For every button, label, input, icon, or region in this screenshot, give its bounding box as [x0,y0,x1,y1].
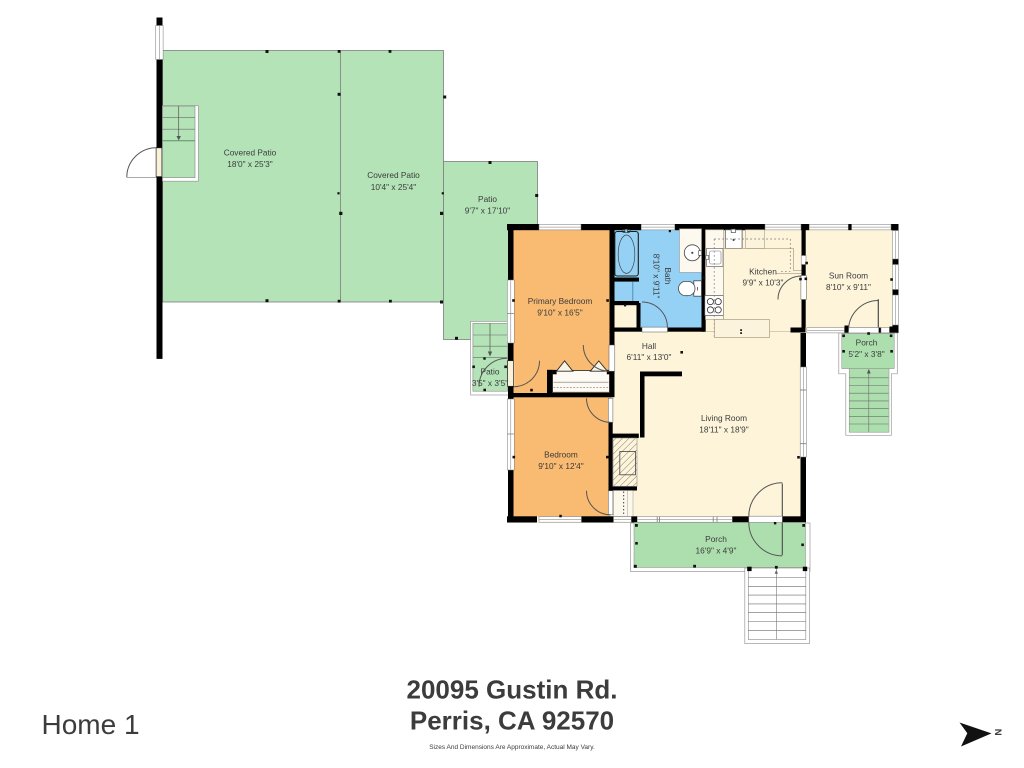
svg-text:Covered Patio: Covered Patio [367,170,420,180]
svg-text:16'9" x 4'9": 16'9" x 4'9" [696,546,737,556]
svg-text:9'10" x 12'4": 9'10" x 12'4" [538,461,584,471]
svg-text:Hall: Hall [642,341,656,351]
svg-text:Patio: Patio [478,194,497,204]
svg-text:6'11" x 13'0": 6'11" x 13'0" [627,352,672,362]
svg-text:Porch: Porch [856,338,878,348]
svg-text:N: N [992,729,1003,736]
svg-text:Porch: Porch [705,534,727,544]
svg-text:Sizes And Dimensions Are Appro: Sizes And Dimensions Are Approximate, Ac… [429,744,595,751]
svg-text:9'7" x 17'10": 9'7" x 17'10" [465,206,511,216]
svg-text:Home 1: Home 1 [42,709,140,740]
svg-text:5'2" x 3'8": 5'2" x 3'8" [848,349,884,359]
svg-text:9'10" x 16'5": 9'10" x 16'5" [537,308,583,318]
svg-text:Living Room: Living Room [701,413,747,423]
svg-text:18'0" x 25'3": 18'0" x 25'3" [227,159,273,169]
svg-text:Sun Room: Sun Room [829,271,868,281]
svg-text:Covered Patio: Covered Patio [224,148,277,158]
svg-text:18'11" x 18'9": 18'11" x 18'9" [699,425,749,435]
svg-text:Primary Bedroom: Primary Bedroom [528,296,593,306]
svg-text:Patio: Patio [481,367,500,377]
svg-text:Bedroom: Bedroom [544,450,578,460]
svg-text:Kitchen: Kitchen [749,267,777,277]
svg-text:20095 Gustin Rd.: 20095 Gustin Rd. [407,675,618,705]
svg-text:Perris, CA 92570: Perris, CA 92570 [410,706,614,736]
svg-text:3'5" x 3'5": 3'5" x 3'5" [472,378,508,388]
svg-text:10'4" x 25'4": 10'4" x 25'4" [371,182,417,192]
svg-text:9'9" x 10'3": 9'9" x 10'3" [743,278,784,288]
svg-text:8'10" x 9'11": 8'10" x 9'11" [826,282,871,292]
